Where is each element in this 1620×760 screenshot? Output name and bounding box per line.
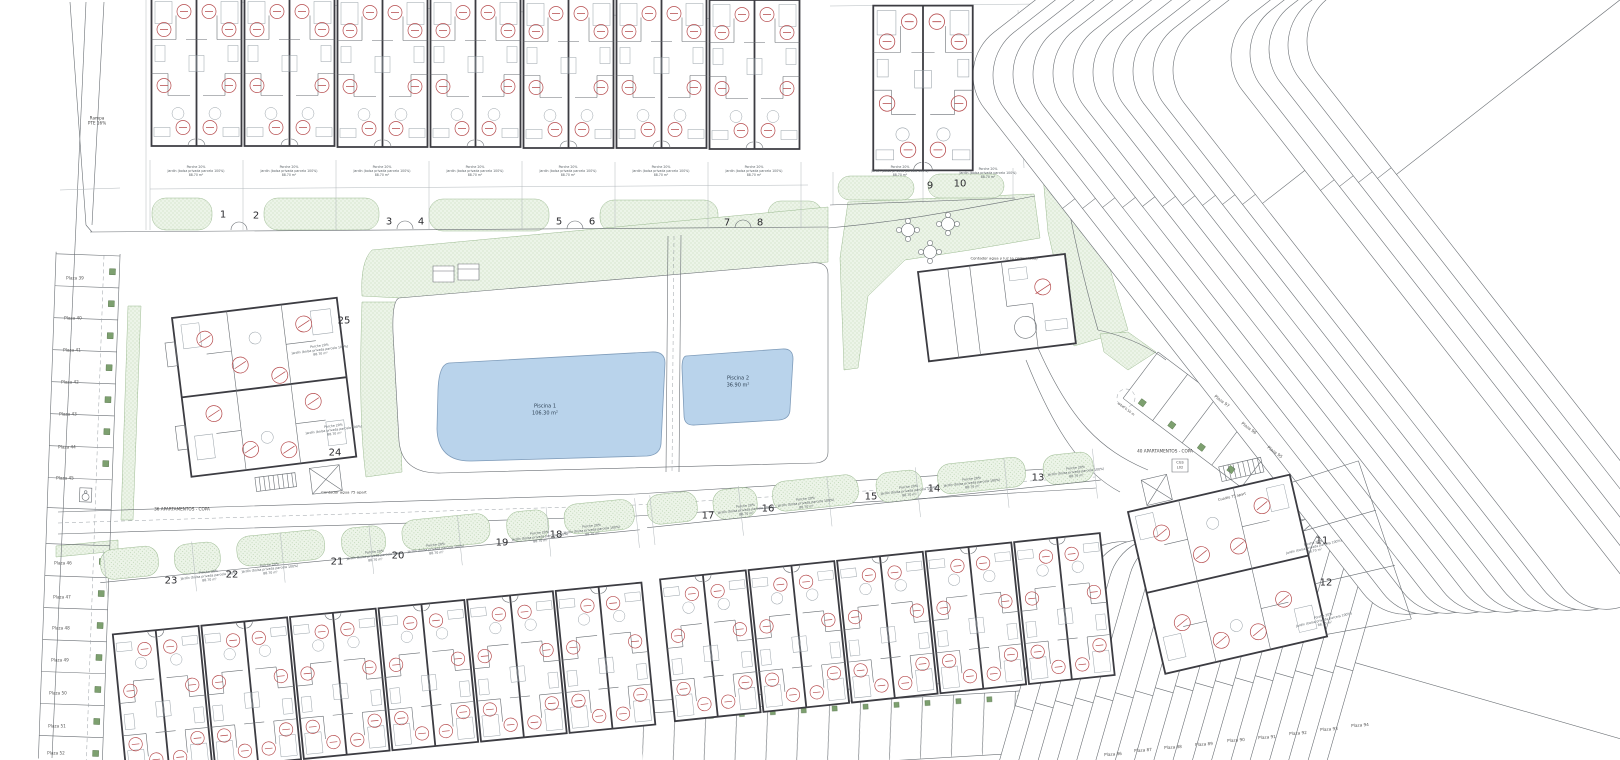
pool-name: Piscina 1	[532, 403, 558, 410]
unit-annotation: Porche 20%Jardín (bolsa privada parcela …	[446, 165, 503, 177]
unit-annotation: Porche 20%Jardín (bolsa privada parcela …	[167, 165, 224, 177]
meter-annotation: Contador agua 75 apart	[321, 491, 367, 496]
garden-area: 88.70 m²	[167, 173, 224, 177]
unit-number: 12	[1320, 578, 1333, 589]
parking-space-label: Plaza 49	[51, 658, 69, 663]
unit-number: 23	[165, 576, 178, 587]
unit-number: 19	[496, 538, 509, 549]
parking-space-label: Plaza 51	[48, 724, 66, 729]
parking-space-label: Plaza 48	[52, 626, 70, 631]
parking-space-label: Plaza 45	[56, 476, 74, 481]
unit-number: 21	[331, 557, 344, 568]
ramp-annotation: Rampa PTE 16%	[88, 116, 106, 127]
left-apartment-building	[162, 298, 360, 510]
unit-number: 17	[702, 511, 715, 522]
parking-space-label: Plaza 39	[66, 276, 84, 281]
unit-annotation: Porche 20%Jardín (bolsa privada parcela …	[260, 165, 317, 177]
apartments-annotation: 36 APARTAMENTOS - COPA	[154, 506, 210, 511]
cgs-line: L02	[1176, 465, 1183, 470]
garden-area: 88.70 m²	[632, 173, 689, 177]
site-plan-canvas: 1 2 3 4 5 6 7 8 9 10 25 24 23 22 21 20 1…	[0, 0, 1620, 760]
garden-area: 88.70 m²	[539, 173, 596, 177]
pool-name: Piscina 2	[727, 375, 750, 382]
unit-number: 3	[386, 217, 392, 228]
pool-area: 36.90 m²	[727, 382, 750, 389]
parking-space-label: Plaza 41	[63, 348, 81, 353]
cgs-annotation: CGS L02	[1176, 460, 1183, 469]
pool-area: 106.30 m²	[532, 410, 558, 417]
unit-annotation: Porche 20%Jardín (bolsa privada parcela …	[959, 167, 1016, 179]
unit-annotation: Porche 20%Jardín (bolsa privada parcela …	[632, 165, 689, 177]
unit-number: 5	[556, 217, 562, 228]
unit-number: 13	[1032, 473, 1045, 484]
parking-space-label: Plaza 43	[59, 412, 77, 417]
apartments-annotation: 40 APARTAMENTOS - COPA	[1137, 448, 1193, 453]
top-row-houses	[152, 0, 800, 149]
cgs-line: CGS	[1176, 460, 1183, 465]
unit-number: 24	[329, 448, 342, 459]
unit-annotation: Porche 20%Jardín (bolsa privada parcela …	[871, 165, 928, 177]
parking-space-label: Plaza 46	[54, 561, 72, 566]
garden-area: 88.70 m²	[260, 173, 317, 177]
community-building	[918, 254, 1076, 361]
parking-space-label: Plaza 47	[53, 595, 71, 600]
site-plan-svg	[0, 0, 1620, 760]
unit-number: 10	[954, 179, 967, 190]
unit-number: 25	[338, 316, 351, 327]
garden-area: 88.70 m²	[353, 173, 410, 177]
unit-number: 4	[418, 217, 424, 228]
unit-number: 2	[253, 211, 259, 222]
parking-space-label: Plaza 52	[47, 751, 65, 756]
pool-label: Piscina 2 36.90 m²	[727, 375, 750, 389]
garden-area: 88.70 m²	[871, 173, 928, 177]
unit-number: 1	[220, 210, 226, 221]
garden-area: 88.70 m²	[959, 175, 1016, 179]
unit-number: 7	[724, 218, 730, 229]
garden-area: 88.70 m²	[446, 173, 503, 177]
parking-space-label: Plaza 42	[61, 380, 79, 385]
meter-annotation: Contador agua y luz (a comunidad)	[970, 257, 1037, 262]
unit-number: 15	[865, 492, 878, 503]
top-right-houses	[873, 6, 972, 171]
handicap-icon	[79, 488, 91, 502]
unit-annotation: Porche 20%Jardín (bolsa privada parcela …	[353, 165, 410, 177]
parking-space-label: Plaza 44	[58, 445, 76, 450]
unit-annotation: Porche 20%Jardín (bolsa privada parcela …	[539, 165, 596, 177]
parking-space-label: Plaza 50	[49, 691, 67, 696]
pool-label: Piscina 1 106.30 m²	[532, 403, 558, 417]
unit-number: 9	[927, 181, 933, 192]
unit-annotation: Porche 20%Jardín (bolsa privada parcela …	[725, 165, 782, 177]
unit-number: 8	[757, 218, 763, 229]
parking-space-label: Plaza 40	[64, 316, 82, 321]
garden-area: 88.70 m²	[725, 173, 782, 177]
ramp-line: PTE 16%	[88, 121, 106, 126]
unit-number: 6	[589, 217, 595, 228]
